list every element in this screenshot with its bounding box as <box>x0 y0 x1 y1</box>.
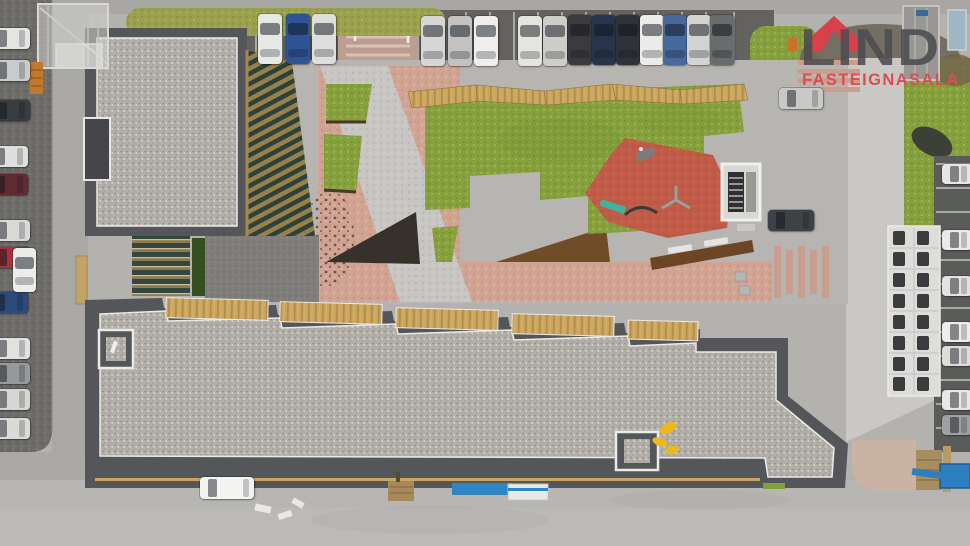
lower-building-gravel-roof <box>100 311 834 477</box>
aerial-photo: LIND FASTEIGNASALA <box>0 0 970 546</box>
facade-trim-line <box>95 478 760 481</box>
lawn-shade <box>500 118 620 162</box>
corten-edge <box>324 190 356 192</box>
logo-wordmark: LIND <box>800 22 940 74</box>
balcony-deck <box>396 308 498 331</box>
hedge <box>192 238 205 296</box>
balcony-deck <box>512 314 614 337</box>
equipment-pad <box>888 226 940 396</box>
grass-bed <box>326 84 372 122</box>
grass-bed <box>324 134 362 192</box>
lind-logo: LIND FASTEIGNASALA <box>796 6 968 102</box>
play-detail <box>639 147 643 151</box>
balcony-deck <box>166 298 268 321</box>
upper-building-gravel-roof <box>97 38 237 226</box>
orange-pallet <box>30 62 43 94</box>
passage-paving <box>205 236 319 302</box>
lawn-shade <box>640 104 720 136</box>
scaffold-trailer <box>38 4 108 68</box>
lower-building <box>85 298 848 489</box>
balcony-deck <box>628 320 698 341</box>
roof-hatch <box>84 118 110 180</box>
road-stain <box>310 506 550 534</box>
skylight-gravel <box>106 337 126 361</box>
south-facade-windows <box>132 236 190 296</box>
concrete-block <box>735 272 746 281</box>
concrete-block <box>739 286 750 295</box>
left-road <box>52 0 88 500</box>
grass-sliver <box>763 483 785 489</box>
balcony-deck <box>280 302 382 325</box>
timber-batten <box>76 256 87 304</box>
upper-building <box>76 28 319 304</box>
skylight-gravel <box>624 439 650 463</box>
logo-subtitle: FASTEIGNASALA <box>802 72 960 89</box>
bench <box>737 224 755 231</box>
road-stain <box>610 490 790 510</box>
paver-corner <box>852 440 916 490</box>
